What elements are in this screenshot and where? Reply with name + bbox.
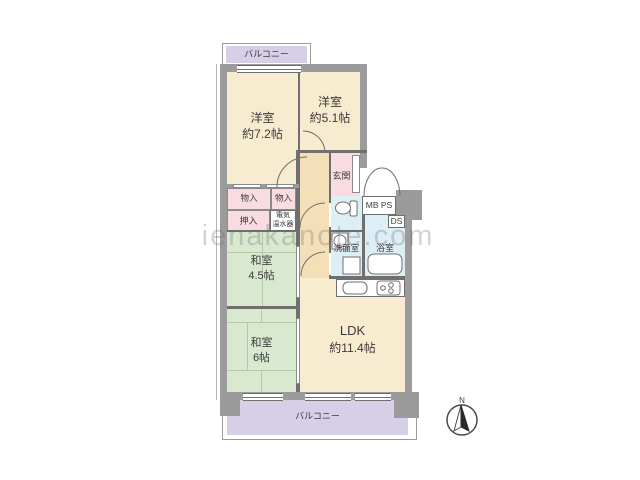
room-size: 約7.2帖	[242, 126, 283, 142]
label-ldk: LDK 約11.4帖	[300, 318, 405, 360]
compass-north-label: N	[452, 396, 472, 406]
hallway	[300, 150, 330, 278]
balcony-top: バルコニー	[226, 46, 307, 63]
room-size: 約11.4帖	[329, 340, 375, 356]
label-japanese-4-5: 和室 4.5帖	[227, 248, 296, 290]
storage-label: 物入	[275, 193, 292, 204]
window-bottom-japanese	[243, 393, 283, 401]
balcony-top-label: バルコニー	[244, 48, 289, 60]
meter-pipe-space-box: MB PS	[362, 196, 396, 215]
tatami-line	[227, 322, 296, 323]
room-name: 和室	[251, 254, 273, 269]
room-size: 6帖	[253, 351, 270, 366]
room-name: 玄関	[332, 170, 350, 182]
label-entrance: 玄関	[329, 168, 354, 184]
room-name: 洋室	[318, 94, 342, 110]
watermark: ienakanote.com	[198, 220, 438, 254]
room-size: 4.5帖	[248, 269, 274, 284]
balcony-wall-block-left	[220, 392, 240, 416]
window-top	[237, 65, 301, 73]
balcony-bottom: バルコニー	[227, 398, 408, 435]
room-name: 洋室	[250, 110, 274, 126]
tatami-line	[261, 309, 262, 322]
window-bottom-ldk-2	[355, 393, 391, 401]
room-name: LDK	[340, 322, 365, 340]
label-western-7-2: 洋室 約7.2帖	[227, 102, 298, 150]
kitchen-counter	[336, 279, 405, 297]
meter-pipe-space-label: MB PS	[366, 200, 392, 211]
partition-5-1-bottom	[299, 150, 367, 153]
balcony-wall-block-right	[394, 392, 419, 418]
label-western-5-1: 洋室 約5.1帖	[300, 86, 360, 134]
window-bottom-ldk-1	[305, 393, 351, 401]
partition-japanese-rooms	[227, 306, 297, 309]
label-storage-1: 物入	[227, 188, 271, 210]
tatami-line	[261, 370, 262, 392]
label-storage-2: 物入	[271, 188, 296, 210]
door-gap	[329, 253, 331, 275]
room-size: 約5.1帖	[310, 110, 351, 126]
compass-icon	[447, 405, 477, 435]
floor-plan: バルコニー 電気 温水器	[0, 0, 640, 480]
storage-label: 物入	[240, 193, 257, 204]
room-name: 和室	[251, 336, 273, 351]
label-japanese-6: 和室 6帖	[227, 333, 296, 369]
front-door-arcs	[364, 168, 400, 196]
balcony-bottom-label: バルコニー	[295, 410, 340, 422]
